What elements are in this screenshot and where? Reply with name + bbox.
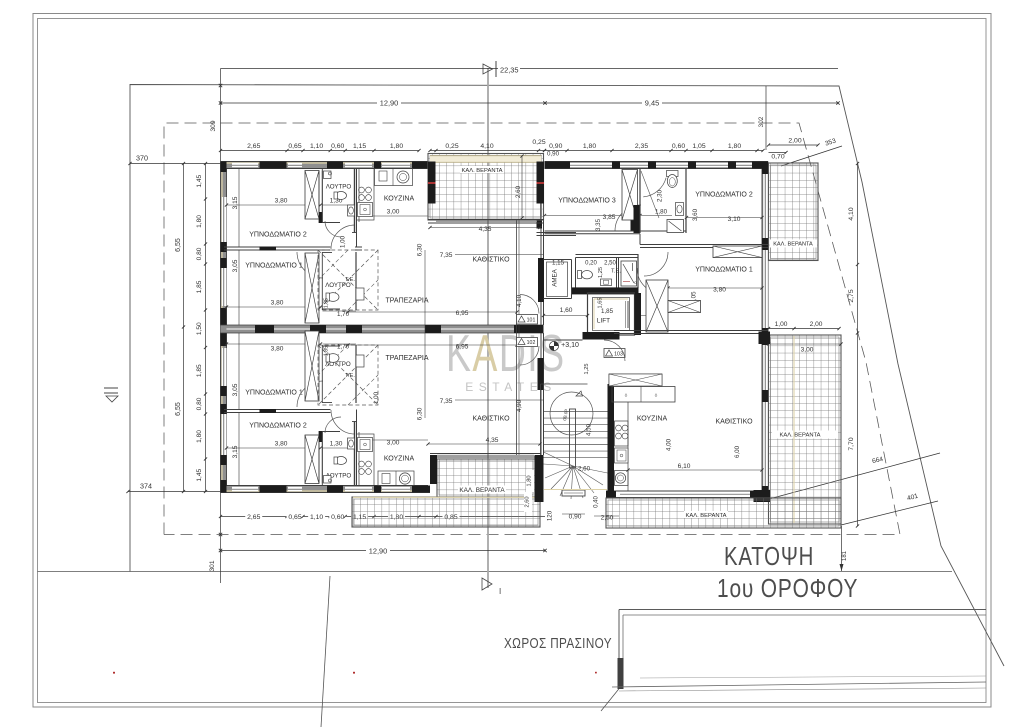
- svg-text:ΥΠΝΟΔΩΜΑΤΙΟ 1: ΥΠΝΟΔΩΜΑΤΙΟ 1: [245, 390, 303, 397]
- svg-text:3,15: 3,15: [232, 445, 239, 458]
- svg-text:3,60: 3,60: [692, 208, 699, 221]
- svg-text:4,50: 4,50: [586, 423, 593, 436]
- svg-text:1,30: 1,30: [330, 441, 343, 448]
- svg-text:3,05: 3,05: [232, 383, 239, 396]
- svg-text:ΚΑΘΙΣΤΙΚΟ: ΚΑΘΙΣΤΙΚΟ: [472, 257, 510, 264]
- svg-text:3,80: 3,80: [275, 441, 288, 448]
- svg-text:1,45: 1,45: [196, 175, 203, 188]
- svg-text:102: 102: [527, 340, 536, 346]
- svg-text:1,85: 1,85: [601, 308, 614, 315]
- svg-text:9,45: 9,45: [645, 99, 659, 108]
- svg-text:ΚΑΛ. ΒΕΡΑΝΤΑ: ΚΑΛ. ΒΕΡΑΝΤΑ: [773, 242, 813, 248]
- svg-text:ΧΩΡΟΣ ΠΡΑΣΙΝΟΥ: ΧΩΡΟΣ ΠΡΑΣΙΝΟΥ: [504, 635, 612, 652]
- svg-text:1,00: 1,00: [340, 235, 347, 248]
- svg-text:2,50: 2,50: [604, 261, 616, 267]
- svg-text:2,00: 2,00: [810, 321, 823, 328]
- svg-text:1,00: 1,00: [775, 321, 788, 328]
- svg-text:1,25: 1,25: [598, 267, 604, 278]
- svg-text:ΥΠΝΟΔΩΜΑΤΙΟ 2: ΥΠΝΟΔΩΜΑΤΙΟ 2: [249, 423, 307, 430]
- svg-text:4,10: 4,10: [480, 143, 493, 150]
- svg-text:ΥΠΝΟΔΩΜΑΤΙΟ 2: ΥΠΝΟΔΩΜΑΤΙΟ 2: [249, 232, 307, 239]
- svg-text:1,80: 1,80: [728, 143, 741, 150]
- svg-text:0,70: 0,70: [771, 154, 784, 161]
- svg-text:12,90: 12,90: [369, 546, 388, 555]
- svg-text:4,00: 4,00: [666, 438, 673, 451]
- svg-text:3,15: 3,15: [232, 196, 239, 209]
- svg-text:1,25: 1,25: [584, 363, 590, 374]
- svg-text:ΚΑΛ. ΒΕΡΑΝΤΑ: ΚΑΛ. ΒΕΡΑΝΤΑ: [461, 168, 502, 174]
- svg-text:0,80: 0,80: [196, 247, 203, 260]
- svg-text:181: 181: [842, 550, 848, 561]
- svg-text:ΤΡΑΠΕΖΑΡΙΑ: ΤΡΑΠΕΖΑΡΙΑ: [385, 355, 428, 362]
- svg-text:3,80: 3,80: [271, 300, 284, 307]
- svg-text:2,35: 2,35: [635, 143, 648, 150]
- svg-text:ΚΟΥΖΙΝΑ: ΚΟΥΖΙΝΑ: [637, 416, 668, 423]
- svg-text:ΥΠΝΟΔΩΜΑΤΙΟ 3: ΥΠΝΟΔΩΜΑΤΙΟ 3: [558, 198, 616, 205]
- svg-text:6,95: 6,95: [456, 310, 469, 317]
- svg-text:6,10: 6,10: [678, 463, 691, 470]
- svg-text:6,00: 6,00: [734, 445, 741, 458]
- svg-text:1,10: 1,10: [310, 143, 323, 150]
- svg-text:1,80: 1,80: [527, 475, 533, 486]
- svg-text:3,35: 3,35: [595, 218, 602, 231]
- svg-text:3,80: 3,80: [275, 198, 288, 205]
- svg-text:LIFT: LIFT: [597, 318, 610, 325]
- svg-text:6,95: 6,95: [456, 344, 469, 351]
- svg-text:301: 301: [209, 560, 216, 571]
- svg-text:0,90: 0,90: [549, 143, 562, 150]
- svg-text:1,15: 1,15: [353, 143, 366, 150]
- svg-text:1,85: 1,85: [196, 280, 203, 293]
- svg-text:0,20: 0,20: [585, 261, 597, 267]
- svg-text:103: 103: [614, 352, 623, 358]
- svg-text:1,70: 1,70: [337, 311, 350, 318]
- svg-text:101: 101: [527, 318, 536, 324]
- svg-text:1,85: 1,85: [324, 298, 330, 308]
- svg-text:3,85: 3,85: [603, 214, 616, 221]
- svg-text:ΚΑΛ. ΒΕΡΑΝΤΑ: ΚΑΛ. ΒΕΡΑΝΤΑ: [685, 513, 726, 519]
- svg-text:ΛΟΥΤΡΟ: ΛΟΥΤΡΟ: [325, 282, 351, 289]
- svg-text:ΥΠΝΟΔΩΜΑΤΙΟ 1: ΥΠΝΟΔΩΜΑΤΙΟ 1: [695, 267, 753, 274]
- svg-text:370: 370: [136, 154, 148, 163]
- svg-text:0,60: 0,60: [672, 143, 685, 150]
- svg-text:1,50: 1,50: [196, 322, 203, 335]
- svg-text:0,90: 0,90: [547, 151, 560, 158]
- svg-text:ΚΑΘΙΣΤΙΚΟ: ΚΑΘΙΣΤΙΚΟ: [472, 416, 510, 423]
- svg-text:ΚΟΥΖΙΝΑ: ΚΟΥΖΙΝΑ: [384, 196, 415, 203]
- svg-text:6,55: 6,55: [175, 402, 182, 416]
- svg-text:1ου ΟΡΟΦΟΥ: 1ου ΟΡΟΦΟΥ: [717, 574, 858, 602]
- svg-text:7,35: 7,35: [440, 252, 453, 259]
- svg-text:ΚΑΛ. ΒΕΡΑΝΤΑ: ΚΑΛ. ΒΕΡΑΝΤΑ: [459, 487, 505, 494]
- svg-text:2,00: 2,00: [788, 138, 801, 145]
- svg-text:ΚΑΛ. ΒΕΡΑΝΤΑ: ΚΑΛ. ΒΕΡΑΝΤΑ: [779, 433, 820, 439]
- svg-text:309: 309: [210, 120, 217, 131]
- svg-text:4,35: 4,35: [486, 437, 499, 444]
- svg-text:3,80: 3,80: [713, 287, 726, 294]
- svg-text:374: 374: [140, 482, 152, 491]
- svg-text:1,45: 1,45: [196, 469, 203, 482]
- svg-text:ΚΑΤΟΨΗ: ΚΑΤΟΨΗ: [724, 542, 814, 571]
- svg-text:1,80: 1,80: [583, 143, 596, 150]
- svg-text:0,90: 0,90: [569, 514, 582, 521]
- svg-text:2,60: 2,60: [515, 185, 522, 198]
- svg-text:Τ.Ε.: Τ.Ε.: [345, 373, 355, 379]
- svg-text:0,65: 0,65: [288, 514, 301, 521]
- svg-text:Τ.Ε.: Τ.Ε.: [611, 269, 621, 275]
- svg-text:7,70: 7,70: [848, 437, 855, 450]
- svg-text:1,80: 1,80: [390, 143, 403, 150]
- svg-text:+3,10: +3,10: [561, 342, 579, 349]
- svg-text:0,25: 0,25: [532, 139, 545, 146]
- svg-text:6,55: 6,55: [175, 238, 182, 252]
- svg-text:0,65: 0,65: [288, 143, 301, 150]
- svg-text:0,60: 0,60: [331, 514, 344, 521]
- svg-text:ΥΠΝΟΔΩΜΑΤΙΟ 2: ΥΠΝΟΔΩΜΑΤΙΟ 2: [695, 192, 753, 199]
- svg-text:3,00: 3,00: [387, 209, 400, 216]
- svg-text:3,00: 3,00: [801, 347, 814, 354]
- svg-text:0,60: 0,60: [331, 143, 344, 150]
- svg-text:ΤΡΑΠΕΖΑΡΙΑ: ΤΡΑΠΕΖΑΡΙΑ: [385, 298, 428, 305]
- svg-text:2,60: 2,60: [578, 466, 591, 473]
- svg-text:Τ.Ε.: Τ.Ε.: [345, 277, 355, 283]
- svg-text:1,85: 1,85: [196, 364, 203, 377]
- svg-text:ΚΑΘΙΣΤΙΚΟ: ΚΑΘΙΣΤΙΚΟ: [715, 419, 753, 426]
- svg-text:3,05: 3,05: [232, 259, 239, 272]
- svg-text:1,65: 1,65: [598, 297, 604, 308]
- svg-text:1,10: 1,10: [310, 514, 323, 521]
- svg-text:ΥΠΝΟΔΩΜΑΤΙΟ 1: ΥΠΝΟΔΩΜΑΤΙΟ 1: [245, 263, 303, 270]
- svg-text:120: 120: [547, 510, 554, 521]
- svg-text:1,05: 1,05: [692, 143, 705, 150]
- svg-text:o: o: [634, 280, 637, 285]
- svg-text:ΚΟΥΖΙΝΑ: ΚΟΥΖΙΝΑ: [384, 456, 415, 463]
- svg-text:0,25: 0,25: [445, 143, 458, 150]
- svg-text:3,00: 3,00: [387, 440, 400, 447]
- svg-text:ΑΜΕΑ: ΑΜΕΑ: [552, 268, 559, 286]
- svg-text:6,30: 6,30: [417, 243, 424, 256]
- svg-text:1,85: 1,85: [324, 346, 330, 356]
- svg-text:2,60: 2,60: [525, 496, 531, 507]
- svg-text:1,70: 1,70: [337, 344, 350, 351]
- svg-text:ΛΟΥΤΡΟ: ΛΟΥΤΡΟ: [326, 184, 352, 191]
- svg-text:1,15: 1,15: [552, 260, 565, 267]
- svg-text:0,40: 0,40: [594, 496, 600, 508]
- svg-text:3,10: 3,10: [728, 216, 741, 223]
- svg-text:2,75: 2,75: [848, 289, 855, 302]
- svg-text:4,10: 4,10: [516, 294, 523, 307]
- svg-text:2,65: 2,65: [247, 514, 260, 521]
- svg-text:7,35: 7,35: [440, 398, 453, 405]
- svg-text:302: 302: [758, 116, 765, 127]
- svg-text:4,10: 4,10: [848, 207, 855, 220]
- svg-text:1,60: 1,60: [560, 307, 573, 314]
- svg-text:22,35: 22,35: [500, 66, 519, 75]
- svg-text:1,00: 1,00: [373, 391, 380, 404]
- svg-text:I: I: [499, 587, 501, 596]
- svg-text:1,80: 1,80: [196, 215, 203, 228]
- svg-text:2,65: 2,65: [247, 143, 260, 150]
- svg-text:1,80: 1,80: [196, 430, 203, 443]
- svg-text:4,90: 4,90: [516, 399, 523, 412]
- svg-text:3,80: 3,80: [271, 346, 284, 353]
- svg-text:12,90: 12,90: [380, 99, 399, 108]
- svg-text:6,30: 6,30: [417, 407, 424, 420]
- svg-text:4,35: 4,35: [479, 226, 492, 233]
- svg-text:0,80: 0,80: [196, 397, 203, 410]
